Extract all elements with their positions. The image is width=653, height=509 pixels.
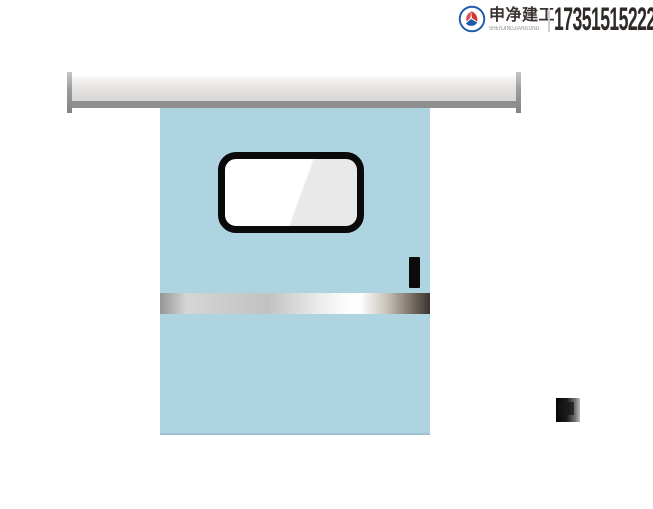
wall-switch [556,398,580,422]
door-handle [409,257,420,288]
kick-plate [160,293,430,314]
brand-logo-icon [458,5,486,33]
door-window [218,152,364,233]
rail-end-cap-right [516,72,521,113]
brand-name: 申净建工 [489,7,547,25]
glass-glare [225,159,357,226]
header-divider [548,8,550,32]
door-panel [160,108,430,435]
wall-switch-inner [558,402,574,415]
phone-number: 17351515222 [554,1,653,38]
page: 申净建工 SHENJINGJIANGONG 17351515222 [0,0,653,509]
track-rail [72,75,516,108]
brand-romanized: SHENJINGJIANGONG [489,26,534,32]
